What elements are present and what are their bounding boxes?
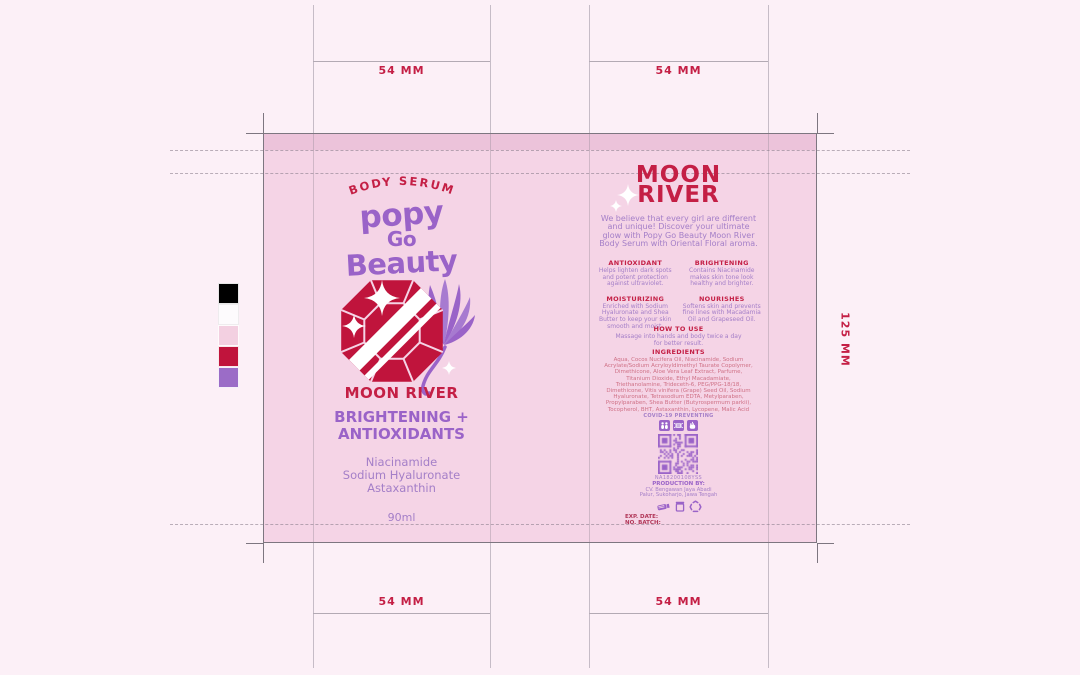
fold-guide-bottom-4 <box>768 543 769 668</box>
crop-mark <box>263 543 264 563</box>
benefit-body: Helps lighten dark spots and potent prot… <box>596 268 675 288</box>
horizontal-guide-2 <box>170 173 910 174</box>
swatch-pink <box>218 325 239 346</box>
swatch-white <box>218 304 239 325</box>
covid-icon-row <box>589 420 768 431</box>
crop-mark <box>246 543 263 544</box>
dimension-line-top-left <box>313 61 490 62</box>
production-address: Palur, Sukoharjo, Jawa Tengah <box>589 492 768 498</box>
crop-mark <box>817 113 818 133</box>
disposal-icon-row <box>589 500 768 513</box>
crop-mark <box>817 543 818 563</box>
dimension-line-top-right <box>589 61 768 62</box>
benefit-cell: ANTIOXIDANT Helps lighten dark spots and… <box>596 259 675 288</box>
swatch-black <box>218 283 239 304</box>
swatch-purple <box>218 367 239 388</box>
recycle-icon <box>689 500 702 513</box>
ingredients-title: INGREDIENTS <box>589 348 768 356</box>
dimension-label-top-left: 54 MM <box>313 64 490 77</box>
benefit-claim-line2: ANTIOXIDANTS <box>313 426 490 443</box>
front-panel: BODY SERUM popy Go Beauty <box>313 133 490 543</box>
dimension-label-top-right: 54 MM <box>589 64 768 77</box>
crop-mark <box>817 133 834 134</box>
crop-mark <box>246 133 263 134</box>
volume-label: 90ml <box>313 511 490 524</box>
fold-guide-bottom-2 <box>490 543 491 668</box>
dimension-line-bottom-right <box>589 613 768 614</box>
dimension-label-bottom-left: 54 MM <box>313 595 490 608</box>
benefit-body: Softens skin and prevents fine lines wit… <box>683 304 762 324</box>
back-panel: MOON RIVER We believe that every girl ar… <box>589 133 768 543</box>
packaging-dieline-artboard: 54 MM 54 MM 54 MM 54 MM 125 MM BODY SERU… <box>0 0 1080 675</box>
benefit-title: BRIGHTENING <box>683 259 762 267</box>
covid-hand-wash-icon <box>687 420 698 431</box>
covid-label: COVID-19 PREVENTING <box>589 413 768 419</box>
how-to-use-title: HOW TO USE <box>589 325 768 333</box>
batch-label: NO. BATCH: <box>625 520 661 526</box>
benefit-title: MOISTURIZING <box>596 295 675 303</box>
covid-face-mask-icon <box>673 420 684 431</box>
period-after-opening-icon <box>674 500 686 513</box>
back-title: MOON RIVER <box>589 166 768 205</box>
squeeze-tube-icon <box>656 500 671 513</box>
how-to-use-section: HOW TO USE Massage into hands and body t… <box>589 325 768 347</box>
crop-mark <box>817 543 834 544</box>
benefits-grid: ANTIOXIDANT Helps lighten dark spots and… <box>596 259 761 330</box>
benefit-cell: BRIGHTENING Contains Niacinamide makes s… <box>683 259 762 288</box>
horizontal-guide-1 <box>170 150 910 151</box>
benefit-body: Contains Niacinamide makes skin tone loo… <box>683 268 762 288</box>
dimension-line-bottom-left <box>313 613 490 614</box>
ruby-gem-icon <box>338 277 451 390</box>
brand-description: We believe that every girl are different… <box>599 215 758 249</box>
crop-mark <box>263 113 264 133</box>
swatch-red <box>218 346 239 367</box>
dimension-label-bottom-right: 54 MM <box>589 595 768 608</box>
benefit-title: ANTIOXIDANT <box>596 259 675 267</box>
benefit-claim-line1: BRIGHTENING + <box>313 409 490 426</box>
horizontal-guide-3 <box>170 524 910 525</box>
covid-people-distancing-icon <box>659 420 670 431</box>
ingredients-body: Aqua, Cocos Nucifera Oil, Niacinamide, S… <box>603 357 755 413</box>
active-ingredient: Astaxanthin <box>313 482 490 495</box>
qr-code <box>658 434 698 474</box>
benefit-title: NOURISHES <box>683 295 762 303</box>
dimension-label-height: 125 MM <box>839 293 852 387</box>
fold-guide-top-4 <box>768 5 769 133</box>
back-title-line2: RIVER <box>589 186 768 206</box>
color-palette <box>218 283 239 388</box>
front-benefit-claim: BRIGHTENING + ANTIOXIDANTS <box>313 409 490 443</box>
gem-flower-illustration <box>326 269 476 401</box>
front-product-name: MOON RIVER <box>313 384 490 402</box>
fold-line-2 <box>490 133 491 543</box>
how-to-use-body: Massage into hands and body twice a day … <box>614 334 744 347</box>
fold-guide-top-2 <box>490 5 491 133</box>
front-actives-list: Niacinamide Sodium Hyaluronate Astaxanth… <box>313 456 490 495</box>
fold-line-4 <box>768 133 769 543</box>
ingredients-section: INGREDIENTS Aqua, Cocos Nucifera Oil, Ni… <box>589 348 768 413</box>
brand-logo: popy Go Beauty <box>313 201 490 277</box>
